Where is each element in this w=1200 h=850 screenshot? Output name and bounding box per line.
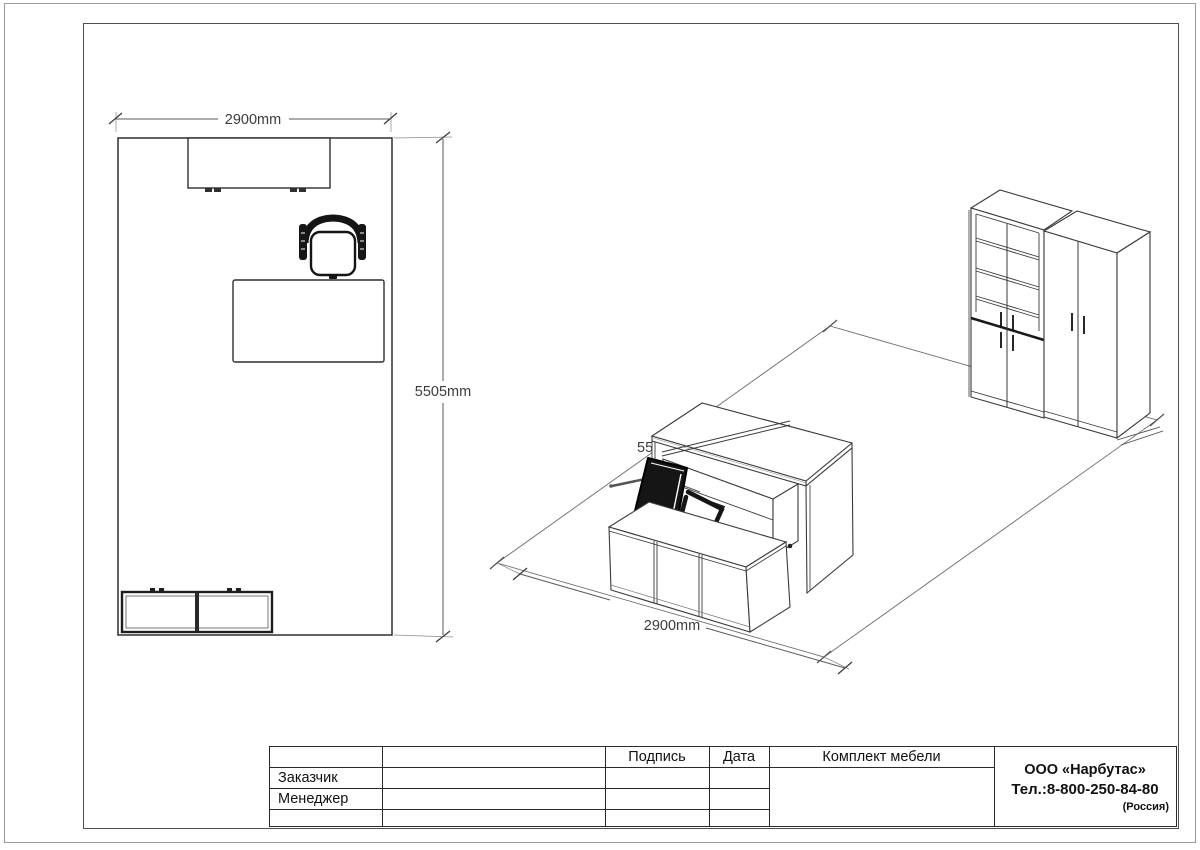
wall-cabinet-plan: [188, 138, 330, 192]
project-title: Комплект мебели: [769, 747, 994, 767]
drawing-canvas: 2900mm 5505mm: [0, 0, 1200, 850]
title-block-divider: [270, 809, 769, 810]
desk-plan: [233, 280, 384, 362]
date-header: Дата: [709, 747, 769, 767]
sideboard-plan: [122, 588, 272, 632]
chair-seat: [311, 232, 355, 275]
plan-width-label: 2900mm: [225, 112, 281, 128]
iso-view: 2900mm 5505mm: [490, 190, 1164, 674]
company-country: (Россия): [1123, 800, 1169, 814]
manager-label: Менеджер: [278, 789, 378, 809]
title-block-divider: [382, 747, 383, 826]
wardrobe-front: [1044, 231, 1117, 438]
floor-plan-view: 2900mm 5505mm: [109, 112, 471, 642]
signature-header: Подпись: [605, 747, 709, 767]
chair-armrest-right: [358, 224, 366, 260]
title-block-divider: [270, 767, 994, 768]
chair-front-nub: [329, 274, 337, 279]
customer-label: Заказчик: [278, 768, 378, 788]
title-block: Подпись Дата Комплект мебели Заказчик Ме…: [269, 746, 1177, 827]
wardrobe-side: [1117, 232, 1150, 438]
company-info: ООО «Нарбутас» Тел.:8-800-250-84-80 (Рос…: [994, 747, 1176, 826]
chair-armrest-left: [299, 224, 307, 260]
company-name: ООО «Нарбутас»: [1024, 760, 1146, 780]
iso-width-label: 2900mm: [644, 618, 700, 634]
dim-tick: [838, 662, 852, 674]
iso-cabinet: [969, 190, 1163, 445]
company-phone: Тел.:8-800-250-84-80: [1011, 780, 1158, 800]
office-chair-plan: [299, 218, 366, 279]
drawing-sheet: 2900mm 5505mm: [0, 0, 1200, 850]
plan-height-label: 5505mm: [415, 384, 471, 400]
room-outline: [118, 138, 392, 635]
